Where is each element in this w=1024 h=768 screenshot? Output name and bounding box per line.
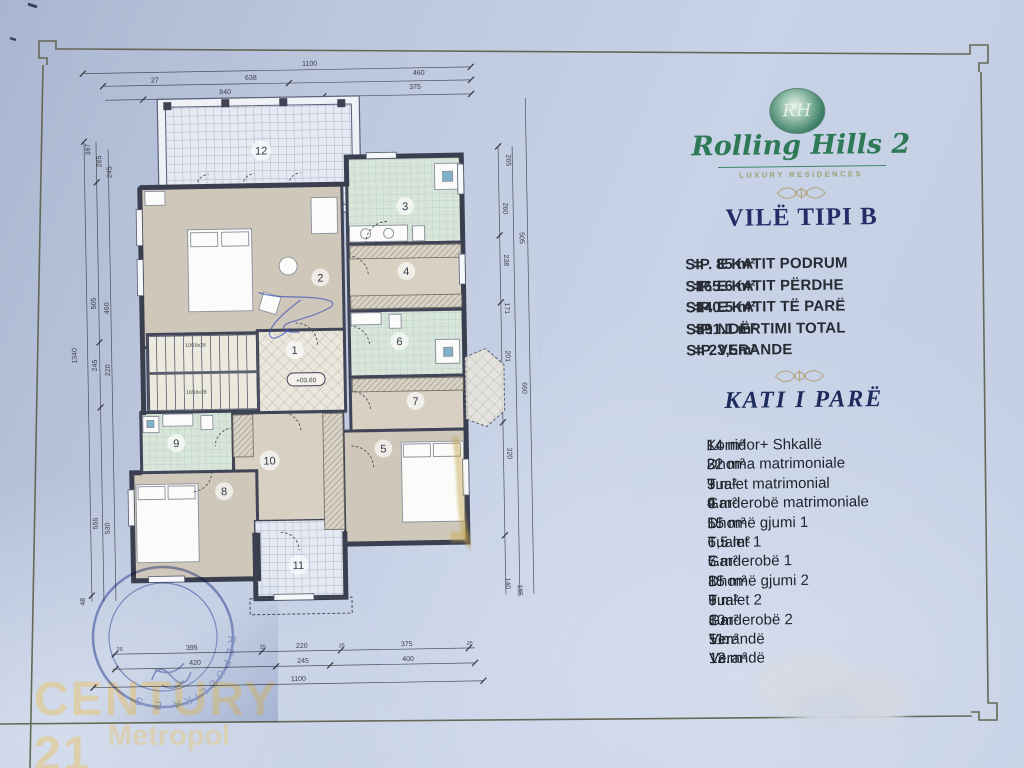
dim-label: 27 — [151, 77, 159, 84]
room-area: 5 m² — [709, 631, 739, 648]
dim-label: 185 — [516, 584, 523, 596]
room-list: 1.Korridor+ Shkallë14 m² 2.Dhoma matrimo… — [706, 435, 927, 670]
photo-of-floor-plan-sheet: CENTURY 21 Metropol — [0, 0, 1024, 768]
dim-label: 660 — [520, 382, 527, 394]
area-value: 140.5 m² — [686, 299, 756, 317]
frame-corner-top-right — [952, 45, 988, 72]
dim-label: 1340 — [72, 348, 79, 364]
room-row: 7.Garderobë 15 m² — [708, 551, 926, 573]
dim-label: 505 — [518, 232, 525, 244]
dim-label: 375 — [401, 641, 413, 648]
room-number: 4 — [403, 266, 409, 278]
dim-label: 1100 — [302, 61, 317, 68]
dim-label: 220 — [296, 643, 308, 650]
room-area: 15 m² — [708, 572, 747, 589]
dim-label: 265 — [96, 155, 103, 167]
room-number: 12 — [255, 145, 267, 157]
room-area: 13 m² — [709, 650, 748, 667]
floor-title: KATI I PARË — [659, 385, 949, 416]
dim-label: 320 — [505, 447, 512, 459]
room-area: 32 m² — [707, 456, 746, 473]
room-1-corridor — [257, 329, 345, 413]
dim-label: 220 — [105, 364, 112, 376]
area-row: SIP. E KATIT PËRDHE=165.6 m² — [685, 275, 921, 299]
room-row: 6.Tualet 16,5 m² — [707, 531, 925, 553]
photo-speck — [28, 4, 37, 7]
room-number: 6 — [396, 336, 402, 348]
room-number: 3 — [402, 201, 408, 213]
room-number: 8 — [221, 486, 227, 498]
dim-label: 25 — [339, 643, 345, 649]
dim-label: 238 — [502, 254, 509, 266]
bay-window — [465, 348, 505, 427]
flourish-divider-icon — [773, 184, 829, 203]
room-row: 2.Dhoma matrimoniale32 m² — [707, 454, 925, 476]
dim-label: 505 — [91, 297, 98, 309]
dim-label: 387 — [85, 144, 92, 156]
area-value: 165.6 m² — [685, 277, 755, 295]
dim-label: 245 — [297, 658, 309, 665]
room-area: 8 m² — [708, 611, 738, 628]
area-row: SIP. E KATIT PODRUM=85 m² — [685, 254, 921, 278]
area-row: SIP. NDËRTIMI TOTAL=391.1 m² — [686, 318, 922, 342]
room-row: 9.Tualet 26 m² — [708, 590, 926, 612]
area-value: 23,5m² — [686, 342, 756, 360]
room-number: 11 — [293, 560, 305, 572]
room-area: 6,5 m² — [707, 534, 750, 552]
official-blue-stamp: REPUBLIKA E S — [48, 552, 278, 722]
dim-label: 265 — [504, 154, 511, 166]
photo-speck — [10, 38, 16, 40]
room-row: 4.Garderobë matrimoniale9 m² — [707, 493, 925, 515]
brand-name: Rolling Hills 2 — [656, 128, 946, 163]
dim-label: 530 — [105, 522, 112, 534]
room-row: 1.Korridor+ Shkallë14 m² — [706, 435, 924, 457]
frame-left-border — [30, 65, 43, 768]
room-row: 10.Garderobë 28 m² — [708, 609, 926, 631]
room-number: 7 — [412, 396, 418, 408]
stair-note: 10/18x28 — [185, 343, 206, 349]
room-number: 5 — [380, 443, 386, 455]
flourish-divider-icon — [771, 367, 827, 386]
villa-type-title: VILË TIPI B — [656, 202, 946, 234]
room-row: 8.Dhomë gjumi 215 m² — [708, 570, 926, 592]
dim-label: 400 — [402, 656, 414, 663]
area-row: SIP. E KATIT TË PARË=140.5 m² — [686, 297, 922, 321]
dim-label: 638 — [245, 75, 257, 82]
dim-label: 201 — [504, 350, 511, 362]
room-area: 9 m² — [707, 495, 737, 512]
elevation-marker: +03.60 — [287, 372, 325, 386]
dim-label: 460 — [413, 70, 425, 77]
room-row: 11.Verandë5 m² — [709, 628, 927, 650]
room-number: 10 — [263, 455, 275, 467]
area-value: 391.1 m² — [686, 320, 756, 338]
dim-label: 460 — [104, 302, 111, 314]
dim-label: 245 — [92, 359, 99, 371]
dim-label: 25 — [467, 641, 473, 647]
room-area: 14 m² — [706, 437, 745, 454]
room-row: 12.Verandë13 m² — [709, 648, 927, 670]
room-number: 1 — [291, 345, 297, 357]
room-number: 2 — [317, 272, 323, 284]
room-area: 15 m² — [707, 514, 746, 531]
dim-label: 171 — [503, 302, 510, 314]
room-row: 5.Dhomë gjumi 115 m² — [707, 512, 925, 534]
area-summary-list: SIP. E KATIT PODRUM=85 m² SIP. E KATIT P… — [685, 254, 922, 365]
room-number: 9 — [173, 438, 179, 450]
logo-monogram: RH — [782, 101, 812, 121]
dim-label: 140 — [504, 577, 511, 589]
dim-label: 260 — [501, 202, 508, 214]
stair-note: 10/18x28 — [186, 390, 207, 396]
frame-right-border — [981, 72, 988, 698]
dim-label: 245 — [106, 166, 113, 178]
svg-text:+03.60: +03.60 — [296, 377, 317, 384]
area-row: SIP. VERANDE=23,5m² — [686, 340, 922, 364]
room-area: 6 m² — [708, 592, 738, 609]
frame-corner-bottom-right — [971, 698, 997, 720]
area-value: 85 m² — [685, 256, 755, 274]
dim-label: 375 — [409, 84, 421, 91]
room-row: 3.Tualet matrimonial9 m² — [707, 473, 925, 495]
dim-label: 1100 — [291, 676, 306, 683]
dim-label: 840 — [219, 89, 231, 96]
dim-label: 555 — [93, 517, 100, 529]
room-area: 5 m² — [708, 553, 738, 570]
room-area: 9 m² — [707, 476, 737, 493]
